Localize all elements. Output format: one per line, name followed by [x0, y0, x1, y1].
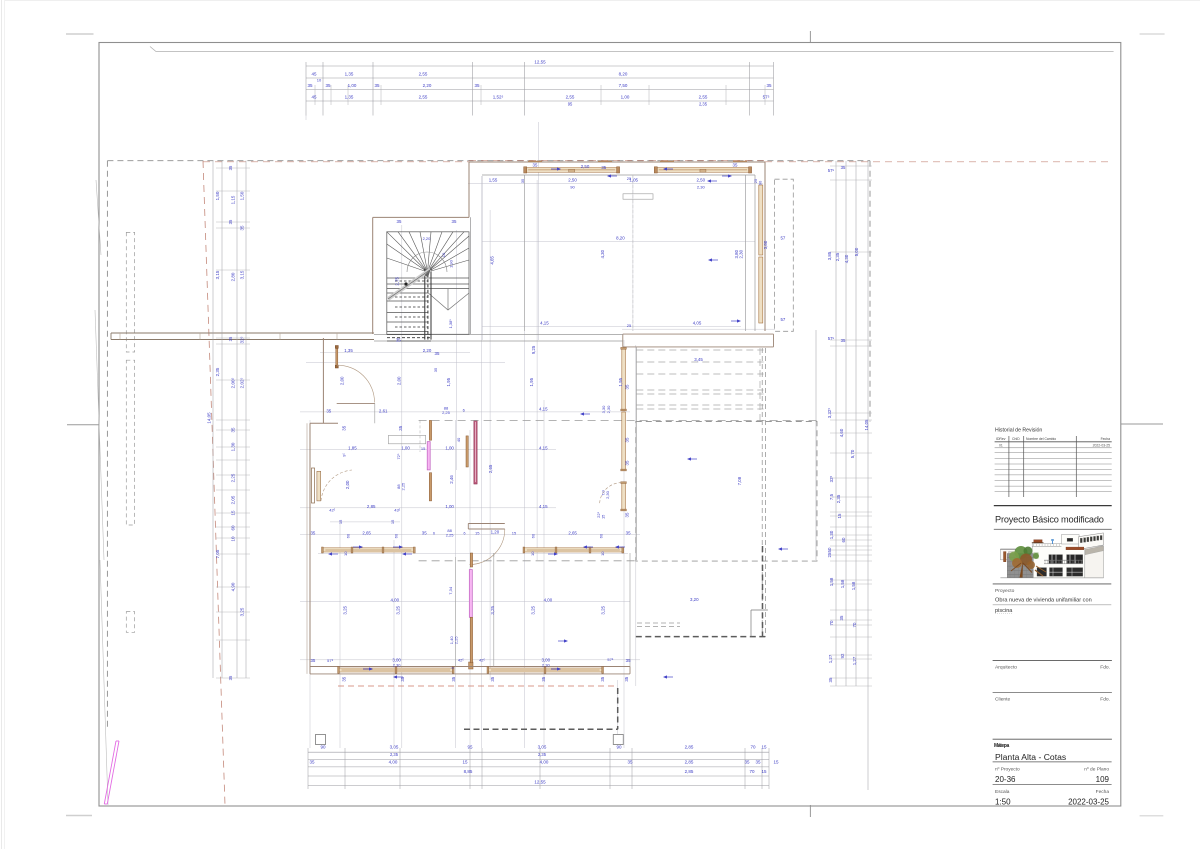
svg-text:2,65: 2,65: [568, 530, 577, 535]
svg-text:1,35: 1,35: [345, 72, 354, 77]
svg-text:10: 10: [600, 551, 605, 556]
svg-text:3,25: 3,25: [396, 605, 401, 614]
svg-text:1,85: 1,85: [348, 446, 357, 451]
svg-text:35: 35: [228, 336, 233, 341]
svg-text:2,30: 2,30: [605, 490, 610, 499]
svg-text:60: 60: [598, 533, 603, 538]
svg-text:3,25: 3,25: [342, 605, 347, 614]
svg-text:Fdo.: Fdo.: [1100, 665, 1110, 671]
svg-text:50: 50: [827, 547, 832, 552]
svg-text:4,00: 4,00: [391, 597, 400, 602]
svg-text:57⁵: 57⁵: [327, 658, 333, 663]
svg-text:43⁵: 43⁵: [394, 507, 400, 512]
svg-text:35: 35: [839, 615, 844, 620]
svg-text:4,00: 4,00: [540, 759, 549, 764]
svg-text:2022-03-25: 2022-03-25: [1068, 797, 1109, 806]
svg-text:2,20: 2,20: [423, 83, 432, 88]
svg-text:Nombre del Cambio: Nombre del Cambio: [1026, 437, 1056, 441]
svg-text:70: 70: [750, 745, 756, 750]
svg-text:35: 35: [625, 384, 630, 389]
svg-text:14,05: 14,05: [207, 412, 212, 424]
svg-text:3,45: 3,45: [694, 357, 703, 362]
svg-text:35: 35: [541, 676, 546, 681]
svg-text:2,20: 2,20: [423, 236, 432, 241]
svg-text:3,25: 3,25: [240, 607, 245, 616]
svg-text:3,25: 3,25: [490, 605, 495, 614]
svg-text:8,85: 8,85: [464, 769, 473, 774]
svg-text:2,30: 2,30: [739, 249, 744, 258]
svg-text:1,58: 1,58: [851, 581, 856, 590]
svg-text:35: 35: [341, 676, 346, 681]
svg-text:57⁵: 57⁵: [828, 168, 835, 173]
svg-text:2,61: 2,61: [379, 408, 388, 413]
svg-text:2,25: 2,25: [454, 636, 459, 645]
svg-text:32⁵: 32⁵: [240, 336, 245, 343]
svg-text:piscina: piscina: [995, 608, 1013, 614]
svg-text:10: 10: [317, 78, 322, 83]
svg-text:2,35: 2,35: [836, 494, 841, 503]
svg-text:35: 35: [627, 759, 633, 764]
svg-text:57: 57: [780, 236, 785, 241]
svg-text:5,00: 5,00: [854, 247, 859, 256]
svg-text:2,25: 2,25: [446, 533, 455, 538]
svg-text:35: 35: [600, 676, 605, 681]
svg-text:1,30: 1,30: [231, 442, 236, 451]
svg-text:42⁵: 42⁵: [458, 658, 464, 663]
svg-text:35: 35: [400, 676, 405, 681]
svg-text:57⁵: 57⁵: [763, 95, 770, 100]
svg-text:57⁵: 57⁵: [828, 336, 835, 341]
svg-text:Planta Alta - Cotas: Planta Alta - Cotas: [995, 752, 1066, 762]
svg-text:1,95: 1,95: [529, 377, 534, 386]
svg-text:2,85: 2,85: [685, 769, 694, 774]
svg-text:1,55: 1,55: [489, 178, 498, 183]
svg-text:92: 92: [840, 653, 845, 658]
svg-text:15: 15: [421, 446, 426, 451]
svg-text:2,35: 2,35: [538, 752, 547, 757]
svg-text:14,05: 14,05: [864, 419, 869, 431]
svg-text:60: 60: [841, 537, 846, 542]
svg-text:1,00: 1,00: [401, 446, 410, 451]
svg-text:2,25: 2,25: [442, 410, 451, 415]
svg-text:35: 35: [433, 367, 438, 372]
svg-text:2,35: 2,35: [390, 752, 399, 757]
svg-text:15: 15: [512, 530, 517, 535]
svg-text:32⁵: 32⁵: [829, 475, 834, 482]
svg-text:2,35: 2,35: [835, 252, 840, 261]
svg-text:2,55: 2,55: [566, 95, 575, 100]
svg-text:57: 57: [780, 317, 785, 322]
svg-text:70: 70: [749, 769, 755, 774]
svg-text:25: 25: [627, 323, 632, 328]
svg-text:15: 15: [475, 530, 480, 535]
svg-text:4,15: 4,15: [539, 504, 548, 509]
svg-text:4,15: 4,15: [539, 446, 548, 451]
svg-text:7,05: 7,05: [215, 549, 220, 558]
svg-text:35: 35: [490, 676, 495, 681]
svg-text:2,30: 2,30: [393, 662, 402, 667]
svg-text:1,27: 1,27: [852, 656, 857, 665]
svg-text:95: 95: [467, 745, 473, 750]
svg-text:10: 10: [231, 536, 236, 542]
svg-text:35: 35: [307, 83, 313, 88]
svg-text:1,27: 1,27: [828, 654, 833, 663]
svg-text:3,05: 3,05: [390, 745, 399, 750]
svg-text:35: 35: [398, 425, 403, 430]
svg-text:35: 35: [624, 676, 629, 681]
svg-text:2,65: 2,65: [488, 464, 493, 473]
svg-text:8,20: 8,20: [616, 236, 625, 241]
svg-text:15: 15: [837, 513, 842, 518]
svg-text:35: 35: [228, 165, 233, 170]
svg-text:Proyecto: Proyecto: [995, 588, 1015, 594]
svg-text:1,58: 1,58: [840, 579, 845, 588]
svg-text:4,15: 4,15: [540, 320, 549, 325]
svg-text:35: 35: [374, 83, 380, 88]
svg-text:15: 15: [761, 769, 767, 774]
svg-text:3,25: 3,25: [600, 605, 605, 614]
svg-text:35: 35: [733, 163, 738, 168]
svg-text:2022-03-25: 2022-03-25: [1093, 444, 1110, 448]
svg-text:1,50: 1,50: [240, 191, 245, 200]
svg-text:3,32⁵: 3,32⁵: [827, 408, 832, 419]
svg-text:2,35: 2,35: [699, 102, 708, 107]
svg-text:6: 6: [464, 531, 466, 535]
svg-text:35: 35: [452, 219, 457, 224]
svg-text:6: 6: [433, 531, 435, 535]
svg-text:Fecha: Fecha: [1101, 437, 1111, 441]
svg-text:2,50: 2,50: [568, 178, 577, 183]
svg-text:9,25: 9,25: [531, 345, 536, 354]
svg-text:1,58: 1,58: [829, 577, 834, 586]
svg-text:90: 90: [320, 745, 326, 750]
svg-text:45: 45: [311, 72, 317, 77]
svg-text:3,20: 3,20: [690, 597, 699, 602]
svg-text:2,05: 2,05: [231, 495, 236, 504]
svg-text:2,85: 2,85: [685, 745, 694, 750]
svg-text:40: 40: [456, 437, 461, 442]
svg-text:109: 109: [1096, 775, 1110, 784]
svg-text:2,00⁵: 2,00⁵: [231, 378, 236, 389]
svg-text:2,55: 2,55: [419, 95, 428, 100]
svg-text:2,85: 2,85: [367, 504, 376, 509]
svg-text:2,25: 2,25: [231, 473, 236, 482]
svg-text:45: 45: [311, 95, 317, 100]
svg-text:42⁵: 42⁵: [329, 507, 335, 512]
svg-text:70: 70: [852, 622, 857, 627]
svg-text:1,90: 1,90: [449, 259, 454, 268]
svg-text:35: 35: [841, 165, 846, 170]
svg-text:01: 01: [999, 444, 1003, 448]
svg-text:2,80: 2,80: [231, 272, 236, 281]
svg-text:35: 35: [520, 178, 525, 183]
svg-text:35: 35: [755, 759, 761, 764]
svg-text:35: 35: [309, 759, 315, 764]
svg-text:35: 35: [326, 408, 331, 413]
svg-text:1,95: 1,95: [446, 377, 451, 386]
svg-text:1,35: 1,35: [345, 95, 354, 100]
svg-text:Fecha: Fecha: [1096, 789, 1110, 795]
svg-text:35: 35: [240, 225, 245, 231]
svg-text:2,00: 2,00: [396, 376, 401, 385]
svg-text:3,05: 3,05: [538, 745, 547, 750]
svg-text:25: 25: [627, 176, 632, 181]
svg-text:1,95: 1,95: [618, 377, 623, 386]
svg-text:1,00: 1,00: [445, 504, 454, 509]
svg-text:35: 35: [625, 512, 630, 517]
svg-text:4,00: 4,00: [389, 759, 398, 764]
svg-text:4,15: 4,15: [539, 407, 548, 412]
svg-text:35: 35: [310, 658, 315, 663]
svg-text:8,20: 8,20: [619, 72, 628, 77]
svg-text:12,55: 12,55: [534, 780, 546, 785]
svg-text:4,90: 4,90: [231, 582, 236, 591]
svg-text:35: 35: [766, 83, 772, 88]
svg-text:1,00: 1,00: [621, 95, 630, 100]
svg-text:15: 15: [462, 759, 468, 764]
svg-text:Escala: Escala: [995, 789, 1010, 795]
svg-text:35: 35: [228, 675, 233, 680]
svg-text:10: 10: [441, 252, 446, 257]
svg-text:Arquitecto: Arquitecto: [995, 665, 1017, 671]
svg-text:3,80: 3,80: [763, 240, 768, 249]
svg-text:35: 35: [744, 759, 750, 764]
svg-text:Mátep a: Mátep a: [994, 743, 1009, 749]
svg-text:4,30: 4,30: [600, 249, 605, 258]
svg-text:35: 35: [625, 437, 630, 442]
svg-text:2,25: 2,25: [401, 482, 406, 491]
svg-text:Historial de Revisión: Historial de Revisión: [995, 428, 1042, 434]
svg-text:2,55: 2,55: [699, 95, 708, 100]
svg-text:Fdo.: Fdo.: [1100, 697, 1110, 703]
svg-text:42⁵: 42⁵: [479, 658, 485, 663]
svg-text:2,55: 2,55: [419, 72, 428, 77]
svg-text:7,50: 7,50: [619, 83, 628, 88]
svg-text:35: 35: [397, 219, 402, 224]
svg-text:25: 25: [827, 552, 832, 557]
svg-text:ChID: ChID: [1012, 437, 1020, 441]
svg-text:1:50: 1:50: [995, 797, 1011, 806]
svg-text:60: 60: [346, 533, 351, 538]
svg-text:2,50: 2,50: [581, 164, 590, 169]
svg-text:6: 6: [451, 667, 455, 669]
svg-text:1,38⁵: 1,38⁵: [448, 319, 453, 329]
svg-text:IDRev: IDRev: [996, 437, 1006, 441]
svg-text:2,30: 2,30: [606, 405, 611, 414]
svg-text:60: 60: [231, 525, 236, 531]
svg-text:35: 35: [828, 677, 833, 682]
svg-text:7,34: 7,34: [448, 586, 453, 595]
svg-text:10: 10: [530, 551, 535, 556]
svg-text:35: 35: [341, 425, 346, 430]
svg-text:35: 35: [435, 351, 440, 356]
svg-text:2,50: 2,50: [697, 178, 706, 183]
svg-text:3,85: 3,85: [827, 251, 832, 260]
svg-text:15: 15: [773, 759, 779, 764]
svg-text:2,30: 2,30: [697, 184, 706, 189]
svg-text:2,20: 2,20: [423, 348, 432, 353]
svg-text:2,46: 2,46: [449, 475, 454, 484]
svg-text:4,00: 4,00: [544, 597, 553, 602]
svg-text:35: 35: [396, 337, 401, 342]
svg-text:35: 35: [474, 83, 480, 88]
svg-text:Proyecto Básico modificado: Proyecto Básico modificado: [995, 515, 1104, 525]
svg-text:35: 35: [533, 163, 538, 168]
svg-text:95: 95: [568, 102, 573, 107]
svg-text:1,00: 1,00: [445, 446, 454, 451]
svg-text:3,15: 3,15: [215, 270, 220, 279]
svg-text:12,55: 12,55: [534, 60, 546, 65]
svg-text:90: 90: [570, 184, 575, 189]
svg-text:1,50: 1,50: [215, 191, 220, 200]
svg-text:35: 35: [601, 165, 606, 170]
svg-text:2,65: 2,65: [362, 530, 371, 535]
svg-text:60: 60: [393, 533, 398, 538]
svg-text:nº Proyecto: nº Proyecto: [995, 766, 1020, 772]
svg-text:15: 15: [761, 745, 767, 750]
svg-text:1,20: 1,20: [491, 530, 500, 535]
svg-text:3,25: 3,25: [531, 605, 536, 614]
svg-text:90: 90: [616, 745, 622, 750]
svg-text:2,02⁵: 2,02⁵: [240, 378, 245, 389]
svg-text:15: 15: [600, 514, 605, 519]
svg-text:35: 35: [626, 658, 631, 663]
svg-text:5,70: 5,70: [850, 449, 855, 458]
svg-text:2,30: 2,30: [542, 662, 551, 667]
svg-text:1,00: 1,00: [348, 83, 357, 88]
svg-text:1,52⁵: 1,52⁵: [493, 95, 504, 100]
svg-text:nº de Plano: nº de Plano: [1084, 766, 1109, 772]
svg-text:7,08: 7,08: [737, 476, 742, 485]
svg-text:35: 35: [841, 338, 846, 343]
svg-text:60: 60: [531, 533, 536, 538]
svg-text:2,00: 2,00: [345, 480, 350, 489]
svg-text:15: 15: [231, 510, 236, 516]
svg-text:20-36: 20-36: [995, 775, 1016, 784]
svg-text:35: 35: [422, 530, 427, 535]
svg-text:9⁵: 9⁵: [341, 453, 346, 457]
svg-text:70: 70: [829, 620, 834, 625]
svg-text:4,30: 4,30: [844, 254, 849, 263]
svg-text:4,05: 4,05: [693, 320, 702, 325]
svg-text:3,15: 3,15: [240, 270, 245, 279]
svg-text:10: 10: [343, 551, 348, 556]
svg-text:Obra nueva de vivienda unifami: Obra nueva de vivienda unifamiliar con: [995, 597, 1092, 603]
svg-text:90: 90: [758, 180, 763, 185]
svg-text:4,60: 4,60: [839, 428, 844, 437]
svg-text:35: 35: [451, 676, 456, 681]
svg-text:2,75: 2,75: [394, 276, 399, 285]
svg-text:35: 35: [231, 427, 236, 433]
svg-text:35: 35: [228, 219, 233, 224]
svg-text:1,15: 1,15: [231, 195, 236, 204]
svg-text:2,35: 2,35: [215, 367, 220, 376]
svg-text:15: 15: [338, 519, 343, 524]
svg-text:35: 35: [310, 530, 315, 535]
svg-text:2,85: 2,85: [685, 759, 694, 764]
svg-text:35: 35: [325, 83, 331, 88]
svg-text:1,30: 1,30: [829, 530, 834, 539]
svg-text:35: 35: [625, 460, 630, 465]
svg-text:15: 15: [390, 519, 395, 524]
svg-text:35: 35: [626, 530, 631, 535]
svg-text:1,35: 1,35: [344, 348, 353, 353]
svg-text:57⁵: 57⁵: [607, 657, 613, 662]
svg-text:72⁵: 72⁵: [396, 453, 401, 459]
svg-text:7,5: 7,5: [829, 493, 834, 500]
svg-text:2,00: 2,00: [340, 376, 345, 385]
svg-text:Cliente: Cliente: [995, 697, 1011, 703]
svg-text:4,65: 4,65: [489, 256, 494, 265]
